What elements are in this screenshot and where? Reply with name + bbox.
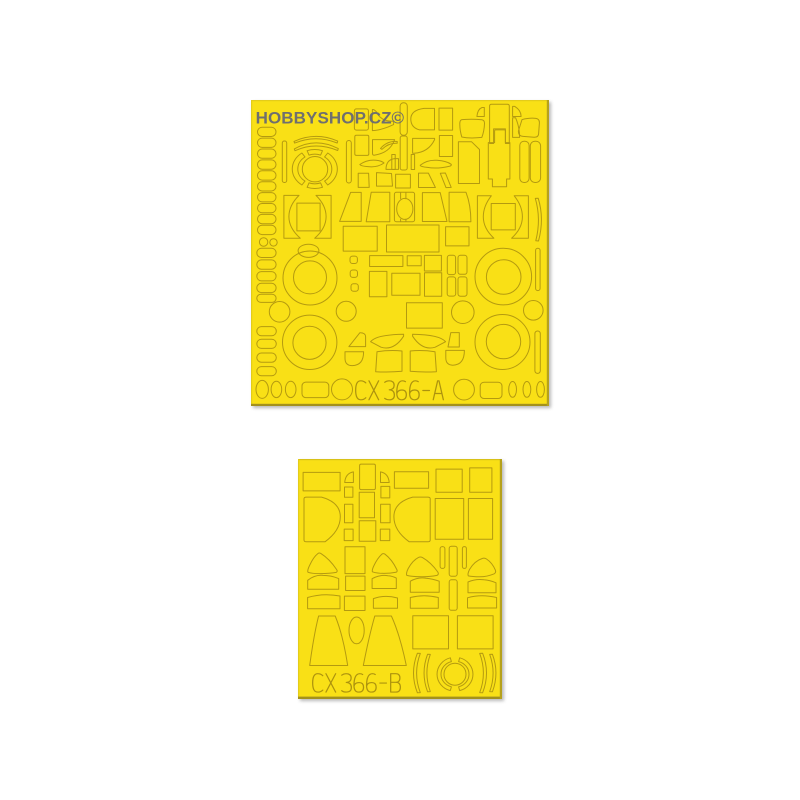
svg-text:HOBBYSHOP.CZ©: HOBBYSHOP.CZ©: [256, 108, 405, 127]
